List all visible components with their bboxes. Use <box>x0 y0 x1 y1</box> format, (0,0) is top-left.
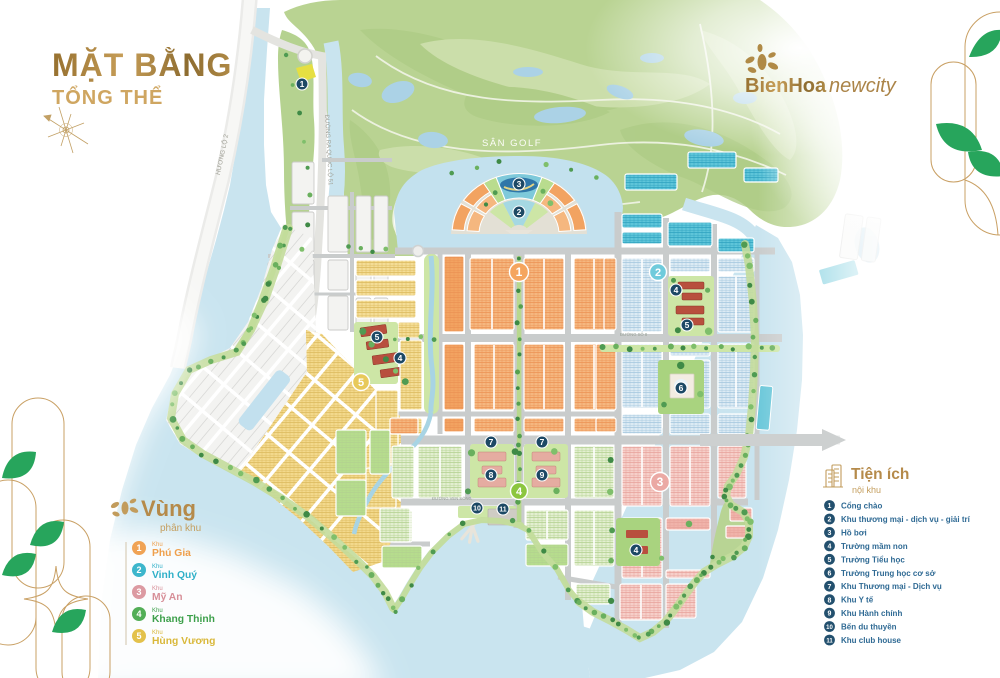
svg-text:Khu Thương mại - Dịch vụ: Khu Thương mại - Dịch vụ <box>841 582 942 591</box>
svg-text:2: 2 <box>655 267 661 279</box>
svg-text:MẶT BẰNG: MẶT BẰNG <box>52 47 232 83</box>
svg-text:3: 3 <box>136 587 141 597</box>
svg-text:8: 8 <box>828 597 832 604</box>
svg-text:1: 1 <box>516 265 523 279</box>
svg-text:Trường Tiểu học: Trường Tiểu học <box>841 555 905 564</box>
svg-text:ĐƯỜNG VEN SÔNG: ĐƯỜNG VEN SÔNG <box>432 496 472 501</box>
svg-text:5: 5 <box>358 377 364 389</box>
svg-text:Trường Trung học cơ sở: Trường Trung học cơ sở <box>841 569 936 578</box>
svg-text:TỔNG THỂ: TỔNG THỂ <box>52 85 163 109</box>
svg-text:Hồ bơi: Hồ bơi <box>841 528 867 537</box>
svg-text:newcity: newcity <box>829 75 897 97</box>
svg-text:nội khu: nội khu <box>852 485 881 495</box>
svg-text:phân khu: phân khu <box>160 523 201 534</box>
svg-text:Phú Gia: Phú Gia <box>152 548 191 559</box>
svg-text:Vùng: Vùng <box>141 496 196 521</box>
svg-text:1: 1 <box>136 543 141 553</box>
svg-text:Vinh Quý: Vinh Quý <box>152 570 197 581</box>
svg-text:6: 6 <box>828 570 832 577</box>
svg-text:Tiện ích: Tiện ích <box>851 466 909 483</box>
svg-text:11: 11 <box>499 506 507 513</box>
svg-text:Mỹ An: Mỹ An <box>152 592 183 603</box>
svg-text:7: 7 <box>489 437 494 447</box>
svg-text:3: 3 <box>517 179 522 189</box>
svg-text:2: 2 <box>517 207 522 217</box>
svg-text:BienHoa: BienHoa <box>745 75 827 97</box>
svg-text:9: 9 <box>540 470 545 480</box>
svg-text:SÂN GOLF: SÂN GOLF <box>482 138 542 149</box>
svg-text:4: 4 <box>398 353 403 363</box>
svg-text:Cổng chào: Cổng chào <box>841 502 882 511</box>
svg-text:Khu thương mại - dịch vụ - giả: Khu thương mại - dịch vụ - giải trí <box>841 515 971 524</box>
svg-text:Khang Thịnh: Khang Thịnh <box>152 614 215 625</box>
svg-text:9: 9 <box>828 611 832 618</box>
svg-text:4: 4 <box>516 486 523 498</box>
svg-text:Bến du thuyền: Bến du thuyền <box>841 623 897 632</box>
svg-text:6: 6 <box>679 383 684 393</box>
svg-text:1: 1 <box>828 503 832 510</box>
svg-text:2: 2 <box>828 517 832 524</box>
svg-text:4: 4 <box>136 609 141 619</box>
svg-text:10: 10 <box>473 505 481 512</box>
svg-text:7: 7 <box>828 584 832 591</box>
svg-text:Khu Y tế: Khu Y tế <box>841 596 874 605</box>
svg-text:4: 4 <box>828 543 832 550</box>
svg-text:4: 4 <box>634 545 639 555</box>
svg-text:3: 3 <box>828 530 832 537</box>
svg-text:8: 8 <box>489 470 494 480</box>
svg-text:5: 5 <box>375 332 380 342</box>
svg-text:2: 2 <box>136 565 141 575</box>
svg-text:Hùng Vương: Hùng Vương <box>152 636 215 647</box>
svg-text:5: 5 <box>685 320 690 330</box>
svg-text:7: 7 <box>540 437 545 447</box>
svg-text:5: 5 <box>136 631 141 641</box>
svg-text:Trường mầm non: Trường mầm non <box>841 542 908 551</box>
svg-text:Khu Hành chính: Khu Hành chính <box>841 609 902 618</box>
svg-text:3: 3 <box>657 475 664 489</box>
svg-text:Khu club house: Khu club house <box>841 636 902 645</box>
svg-text:10: 10 <box>826 625 833 631</box>
svg-text:4: 4 <box>674 285 679 295</box>
svg-text:1: 1 <box>300 79 305 89</box>
svg-text:5: 5 <box>828 557 832 564</box>
svg-text:11: 11 <box>826 639 833 645</box>
svg-text:ĐƯỜNG SỐ 8: ĐƯỜNG SỐ 8 <box>620 332 648 337</box>
